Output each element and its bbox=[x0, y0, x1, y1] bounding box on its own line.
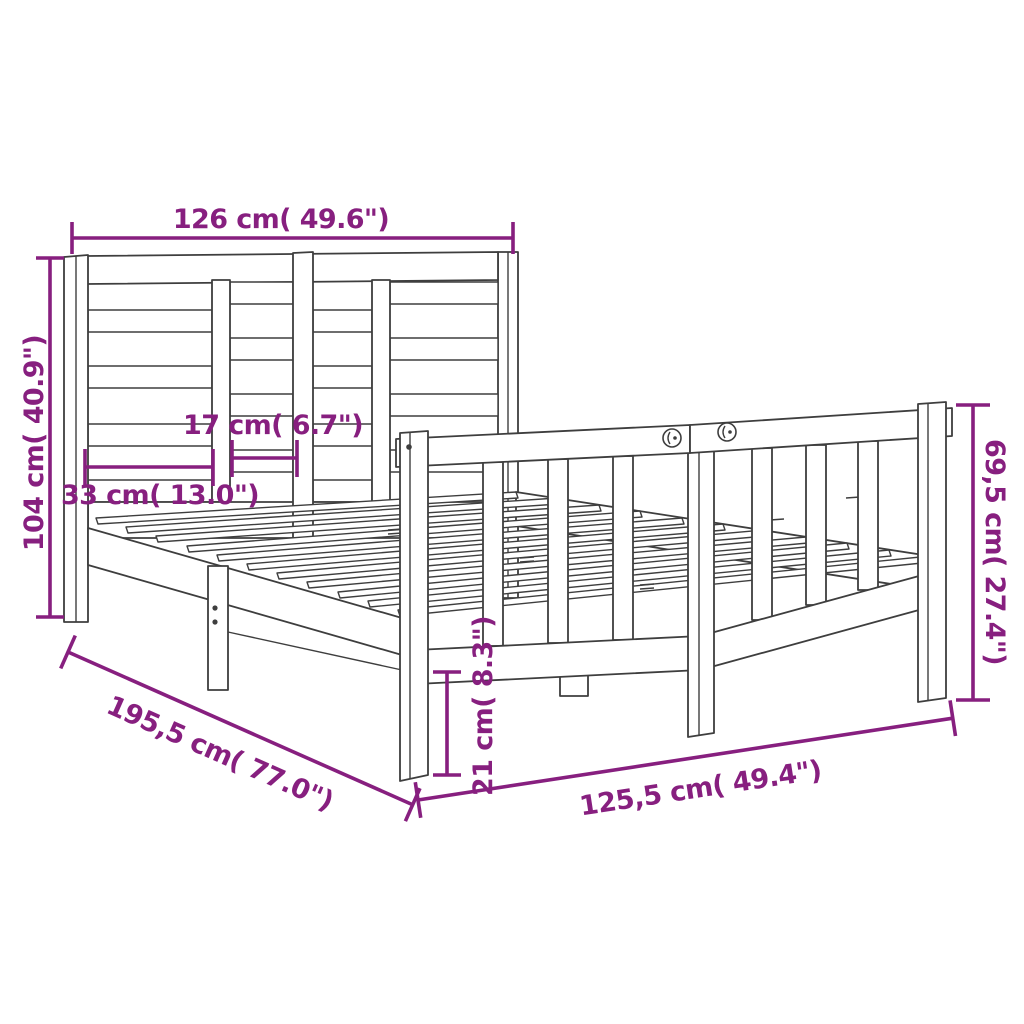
screw-icon bbox=[406, 444, 412, 450]
headboard-slats-mid-left bbox=[230, 282, 293, 472]
dimension-label: 195,5 cm( 77.0") bbox=[102, 690, 338, 817]
dimension-label: 126 cm( 49.6") bbox=[173, 204, 389, 235]
diagram-canvas: 126 cm( 49.6") 104 cm( 40.9") 17 cm( 6.7… bbox=[0, 0, 1024, 1024]
dimension-rail-clearance: 21 cm( 8.3") bbox=[433, 616, 499, 796]
dimension-label: 17 cm( 6.7") bbox=[183, 410, 363, 441]
footboard-right-post bbox=[918, 402, 946, 702]
dimension-frame-length: 195,5 cm( 77.0") bbox=[49, 636, 420, 848]
dimension-headboard-height: 104 cm( 40.9") bbox=[19, 258, 64, 617]
dimension-label: 33 cm( 13.0") bbox=[61, 480, 259, 511]
cam-lock-icon bbox=[718, 423, 736, 441]
footboard-left-post bbox=[400, 431, 428, 781]
dimension-label: 104 cm( 40.9") bbox=[19, 335, 50, 551]
bed-frame-dimension-diagram: 126 cm( 49.6") 104 cm( 40.9") 17 cm( 6.7… bbox=[0, 0, 1024, 1024]
screw-icon bbox=[212, 619, 217, 624]
dimension-headboard-width: 126 cm( 49.6") bbox=[72, 204, 513, 254]
headboard-center-post bbox=[293, 252, 313, 538]
dimension-label: 69,5 cm( 27.4") bbox=[979, 439, 1010, 665]
cam-lock-icon bbox=[663, 429, 681, 447]
headboard-top-rail bbox=[86, 252, 498, 284]
dimension-footboard-height: 69,5 cm( 27.4") bbox=[956, 405, 1010, 700]
headboard-slats-mid-right bbox=[313, 310, 372, 502]
side-rail-leg bbox=[208, 566, 228, 690]
footboard-top-rail-left bbox=[396, 425, 690, 467]
dimension-label: 21 cm( 8.3") bbox=[468, 616, 499, 796]
dimension-label: 125,5 cm( 49.4") bbox=[578, 755, 824, 823]
screw-icon bbox=[212, 605, 217, 610]
headboard-inner-post-right bbox=[372, 280, 390, 502]
headboard-slats-left bbox=[88, 310, 212, 502]
footboard-bottom-rail-left bbox=[416, 636, 700, 684]
footboard-middle-post bbox=[688, 451, 714, 737]
